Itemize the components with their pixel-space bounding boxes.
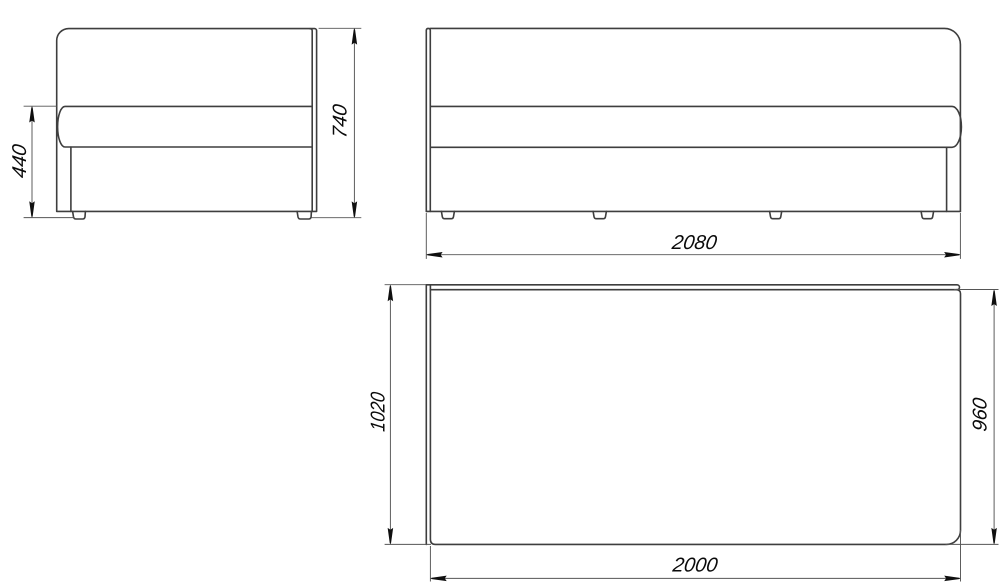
svg-text:2080: 2080 bbox=[670, 232, 719, 254]
svg-text:1020: 1020 bbox=[368, 391, 390, 433]
svg-text:2000: 2000 bbox=[670, 555, 719, 577]
svg-text:440: 440 bbox=[9, 143, 31, 179]
svg-text:960: 960 bbox=[970, 396, 992, 432]
svg-text:740: 740 bbox=[329, 103, 351, 139]
